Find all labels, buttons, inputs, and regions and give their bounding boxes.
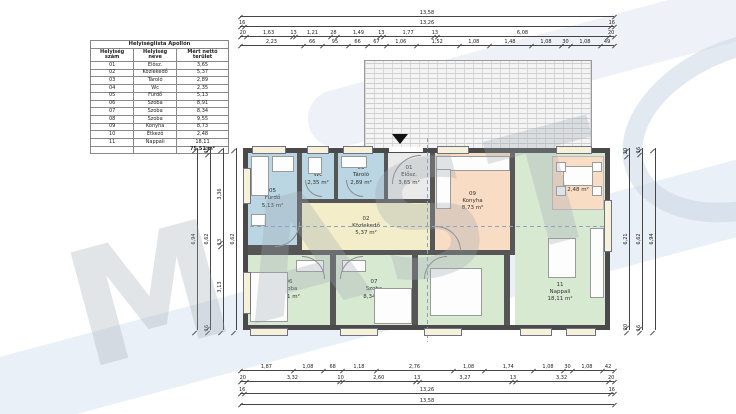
dim-label: 1,48 (504, 39, 515, 45)
interior-wall (302, 199, 430, 203)
dimension-chain: 13,58 (240, 397, 614, 407)
interior-wall (412, 255, 418, 325)
room-list-table: Helyiséglista Apollón Helyiség számHelyi… (90, 40, 229, 154)
window (437, 146, 469, 154)
dim-label: 16 (239, 387, 245, 393)
dim-label: 20 (623, 324, 629, 330)
furniture (374, 288, 412, 324)
furniture (251, 214, 266, 226)
dim-label: 66 (309, 39, 315, 45)
window (424, 328, 462, 336)
table-cell: 5,13 (176, 92, 228, 100)
dimension-tick (624, 331, 629, 336)
dim-label: 1,18 (353, 364, 364, 370)
table-cell: 08 (91, 115, 134, 123)
table-row: 01Elősz.3,65 (91, 62, 229, 70)
interior-wall (384, 153, 388, 203)
dim-label: 13,58 (420, 398, 434, 404)
interior-wall (243, 250, 515, 255)
dim-label: 30 (562, 39, 568, 45)
dimension-chain: 2,23669566671,061,521,081,481,08301,0849 (240, 38, 614, 48)
dim-label: 20 (608, 375, 614, 381)
dimension-chain: 6,94 (649, 148, 659, 330)
table-row: 04Wc2,35 (91, 85, 229, 93)
dimension-line (629, 148, 630, 330)
furniture (563, 166, 593, 186)
table-cell: 5,37 (176, 69, 228, 77)
section-line (427, 138, 428, 342)
room-number: 11 (557, 282, 564, 289)
window (604, 200, 612, 252)
room-number: 09 (469, 191, 476, 198)
dim-label: 13,58 (420, 10, 434, 16)
table-cell: Szoba (134, 100, 177, 108)
table-cell: Szoba (134, 108, 177, 116)
dim-label: 1,08 (581, 364, 592, 370)
dim-label: 13 (217, 239, 223, 245)
dim-label: 42 (605, 364, 611, 370)
dimension-tick (374, 369, 379, 374)
dim-label: 13 (414, 375, 420, 381)
dim-label: 13 (290, 30, 296, 36)
table-header-cell: Helyiség neve (134, 48, 177, 61)
furniture (548, 238, 576, 278)
table-cell: 3,65 (176, 62, 228, 70)
dimension-chain: 166,6216 (636, 148, 646, 330)
table-cell: 10 (91, 131, 134, 139)
furniture (436, 169, 451, 209)
furniture (341, 156, 367, 168)
table-cell: 02 (91, 69, 134, 77)
dimension-chain: 1613,2616 (240, 19, 614, 29)
dimension-chain: 203,32102,60133,27133,3220 (240, 374, 614, 384)
dimension-tick (482, 369, 487, 374)
dim-label: 1,08 (579, 39, 590, 45)
room-name: Tároló (353, 172, 369, 179)
dim-label: 6,62 (204, 233, 210, 244)
room-area: 5,13 m² (262, 203, 284, 210)
dimension-chain: 13,58 (240, 9, 614, 19)
dim-label: 13 (432, 30, 438, 36)
dim-label: 10 (337, 375, 343, 381)
dim-label: 1,21 (307, 30, 318, 36)
furniture (592, 162, 602, 172)
dimension-tick (301, 44, 306, 49)
dim-label: 1,74 (503, 364, 514, 370)
table-cell: 01 (91, 62, 134, 70)
table-cell: 11 (91, 138, 134, 146)
interior-wall (510, 153, 515, 254)
dimension-line (210, 148, 211, 330)
dim-label: 16 (609, 387, 615, 393)
room-name: Nappali (550, 289, 571, 296)
dimension-tick (650, 331, 655, 336)
dim-label: 16 (204, 147, 210, 153)
dim-label: 95 (332, 39, 338, 45)
table-cell: 06 (91, 100, 134, 108)
dim-label: 3,32 (287, 375, 298, 381)
dimension-chain: 3,36133,13 (217, 148, 227, 330)
room-area: 8,73 m² (462, 205, 484, 212)
dimension-line (223, 148, 224, 330)
window (307, 146, 329, 154)
dim-label: 3,32 (556, 375, 567, 381)
dimension-tick (231, 331, 236, 336)
dimension-tick (192, 331, 197, 336)
dim-label: 13 (378, 30, 384, 36)
window (566, 328, 596, 336)
entrance-door-gap (389, 147, 423, 152)
dim-label: 28 (330, 30, 336, 36)
table-body: 01Elősz.3,6502Közlekedő5,3703Tároló2,890… (91, 62, 229, 147)
furniture (556, 162, 566, 172)
table-cell: Szoba (134, 115, 177, 123)
dimension-line (655, 148, 656, 330)
dimension-tick (612, 403, 617, 408)
dim-label: 13 (510, 375, 516, 381)
dimension-line (240, 381, 614, 382)
dimension-line (240, 45, 614, 46)
room-number: 05 (269, 188, 276, 195)
window (243, 272, 251, 314)
table-cell: 07 (91, 108, 134, 116)
section-line (250, 226, 608, 227)
table-row: 03Tároló2,89 (91, 77, 229, 85)
furniture (590, 228, 604, 298)
dim-label: 49 (604, 39, 610, 45)
dimension-tick (218, 331, 223, 336)
table-cell: 8,73 (176, 123, 228, 131)
dim-label: 6,94 (649, 233, 655, 244)
dimension-line (197, 148, 198, 330)
table-cell: 8,91 (176, 100, 228, 108)
table-cell: 03 (91, 77, 134, 85)
table-row: 10Étkező2,48 (91, 131, 229, 139)
table-cell: Étkező (134, 131, 177, 139)
window (250, 328, 288, 336)
dimension-line (240, 16, 614, 17)
dim-label: 68 (330, 364, 336, 370)
dim-label: 1,87 (261, 364, 272, 370)
table-header-cell: Mért nettó terület (176, 48, 228, 61)
dim-label: 3,13 (217, 281, 223, 292)
room-area: 5,37 m² (355, 230, 377, 237)
table-row: 07Szoba8,34 (91, 108, 229, 116)
table-cell: Wc (134, 85, 177, 93)
dimension-line (642, 148, 643, 330)
dimension-tick (531, 369, 536, 374)
dimension-tick (384, 44, 389, 49)
window (243, 168, 251, 204)
dimension-tick (238, 44, 243, 49)
dimension-tick (238, 403, 243, 408)
table-cell: 8,34 (176, 108, 228, 116)
dimension-tick (205, 331, 210, 336)
table-title: Helyiséglista Apollón (91, 41, 229, 49)
furniture (592, 186, 602, 196)
table-cell: 05 (91, 92, 134, 100)
dim-label: 2,76 (409, 364, 420, 370)
table-cell: 2,48 (176, 131, 228, 139)
furniture (272, 156, 294, 172)
dimension-tick (319, 44, 324, 49)
table-row: 05Fürdő5,13 (91, 92, 229, 100)
table-row: 02Közlekedő5,37 (91, 69, 229, 77)
dimension-tick (487, 44, 492, 49)
dim-label: 1,77 (403, 30, 414, 36)
dimension-line (240, 393, 614, 394)
dimension-tick (414, 44, 419, 49)
dimension-tick (612, 369, 617, 374)
table-cell: 9,55 (176, 115, 228, 123)
dim-label: 1,49 (353, 30, 364, 36)
dim-label: 16 (609, 20, 615, 26)
table-row: 11Nappali18,11 (91, 138, 229, 146)
window (340, 328, 378, 336)
dim-label: 20 (240, 375, 246, 381)
dimension-tick (529, 44, 534, 49)
dim-label: 1,08 (540, 39, 551, 45)
dim-label: 1,52 (432, 39, 443, 45)
dimension-tick (457, 44, 462, 49)
furniture (251, 156, 269, 196)
room-number: 02 (363, 216, 370, 223)
dim-label: 1,08 (542, 364, 553, 370)
dim-label: 66 (354, 39, 360, 45)
window (520, 328, 552, 336)
interior-wall (504, 255, 510, 325)
dim-label: 16 (636, 325, 642, 331)
table-cell: Elősz. (134, 62, 177, 70)
dim-label: 30 (564, 364, 570, 370)
table-cell: 18,11 (176, 138, 228, 146)
table-cell: Konyha (134, 123, 177, 131)
dimension-line (240, 404, 614, 405)
dimension-tick (291, 369, 296, 374)
dimension-tick (340, 369, 345, 374)
dim-label: 16 (239, 20, 245, 26)
table-cell: 04 (91, 85, 134, 93)
table-cell: Tároló (134, 77, 177, 85)
room-area: 18,11 m² (547, 296, 572, 303)
dimension-chain: 1613,2616 (240, 386, 614, 396)
dim-label: 3,27 (459, 375, 470, 381)
dim-label: 1,08 (468, 39, 479, 45)
interior-wall (430, 153, 435, 254)
dim-label: 6,21 (623, 233, 629, 244)
dim-label: 1,08 (302, 364, 313, 370)
room-name: Konyha (462, 198, 482, 205)
table-cell: 2,35 (176, 85, 228, 93)
interior-wall (330, 255, 336, 325)
dim-label: 6,62 (230, 233, 236, 244)
dimension-tick (365, 44, 370, 49)
dimension-chain: 166,6216 (204, 148, 214, 330)
table-cell: 2,89 (176, 77, 228, 85)
furniture (250, 272, 288, 322)
room-number: 07 (371, 279, 378, 286)
dim-label: 6,08 (517, 30, 528, 36)
window (556, 146, 592, 154)
dim-label: 16 (204, 325, 210, 331)
dimension-tick (598, 44, 603, 49)
table-header-cell: Helyiség szám (91, 48, 134, 61)
dimension-tick (346, 44, 351, 49)
dim-label: 6,94 (191, 233, 197, 244)
room-area: 2,48 m² (567, 187, 589, 194)
dim-label: 1,63 (263, 30, 274, 36)
dimension-line (240, 26, 614, 27)
dim-label: 16 (636, 147, 642, 153)
dimension-tick (612, 44, 617, 49)
dim-label: 20 (240, 30, 246, 36)
dim-label: 67 (373, 39, 379, 45)
dim-label: 2,60 (373, 375, 384, 381)
table-cell: Fürdő (134, 92, 177, 100)
window (343, 146, 373, 154)
dimension-tick (238, 369, 243, 374)
dimension-line (236, 148, 237, 330)
furniture (308, 157, 322, 174)
dimension-chain: 1,871,08681,182,761,081,741,08301,0842 (240, 363, 614, 373)
dim-label: 2,23 (266, 39, 277, 45)
dim-label: 1,08 (463, 364, 474, 370)
entrance-arrow-icon (392, 134, 408, 144)
dim-label: 13,26 (420, 20, 434, 26)
room-name: Fürdő (265, 195, 280, 202)
dimension-tick (451, 369, 456, 374)
dimension-chain: 6,62 (230, 148, 240, 330)
window (252, 146, 286, 154)
furniture (556, 186, 566, 196)
dimension-line (240, 370, 614, 371)
dim-label: 6,62 (636, 233, 642, 244)
dimension-tick (637, 331, 642, 336)
table-cell: Nappali (134, 138, 177, 146)
dim-label: 3,36 (217, 189, 223, 200)
table-row: 06Szoba8,91 (91, 100, 229, 108)
floorplan-canvas: MAST Helyiséglista Apollón Helyiség szám… (0, 0, 736, 414)
table-header-row: Helyiség számHelyiség neveMért nettó ter… (91, 48, 229, 61)
dim-label: 1,06 (395, 39, 406, 45)
dimension-chain: 206,2120 (623, 148, 633, 330)
dim-label: 20 (608, 30, 614, 36)
dimension-chain: 6,94 (191, 148, 201, 330)
interior-wall (334, 153, 338, 203)
dim-label: 20 (623, 148, 629, 154)
table-cell: Közlekedő (134, 69, 177, 77)
table-row: 08Szoba9,55 (91, 115, 229, 123)
table-row: 09Konyha8,73 (91, 123, 229, 131)
dim-label: 13,26 (420, 387, 434, 393)
dimension-tick (321, 369, 326, 374)
table-cell: 09 (91, 123, 134, 131)
